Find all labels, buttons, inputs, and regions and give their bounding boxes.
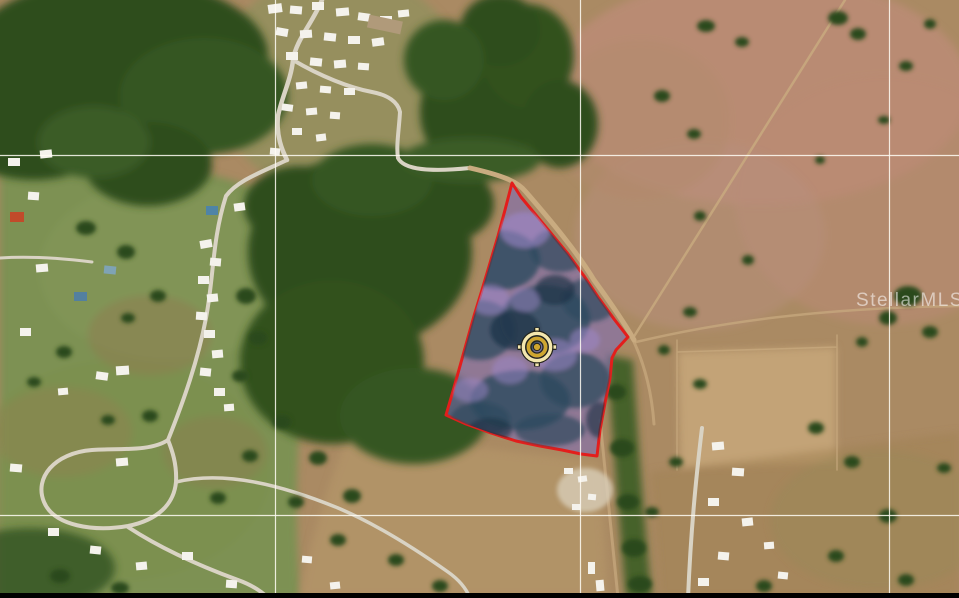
- satellite-map: StellarMLS: [0, 0, 959, 598]
- mls-listing-photo: StellarMLS: [0, 0, 959, 598]
- stellar-mls-watermark: StellarMLS: [856, 290, 959, 311]
- letterbox-bottom: [0, 593, 959, 598]
